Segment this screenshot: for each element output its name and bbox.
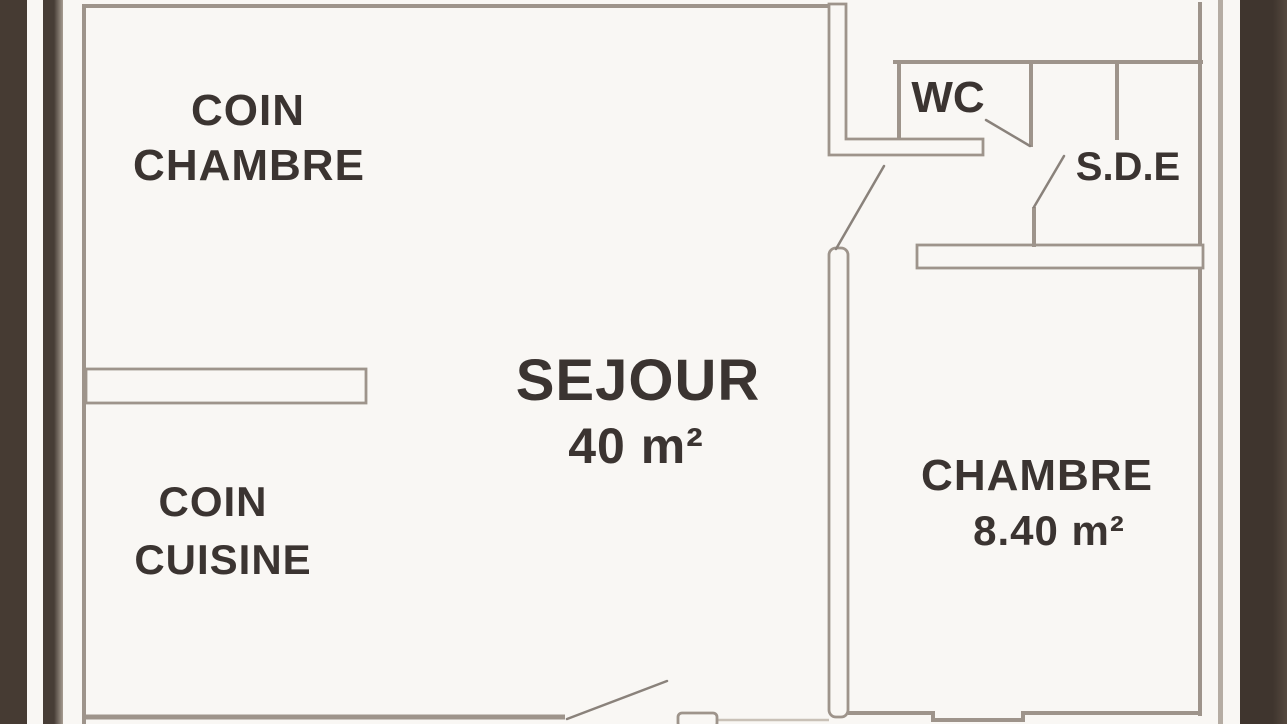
- door-threshold-box: [678, 713, 717, 724]
- room-label-coin-cuisine-line2: CUISINE: [134, 539, 311, 581]
- room-label-sde: S.D.E: [1076, 147, 1180, 187]
- wall-bottom-chambre: [848, 713, 1200, 720]
- room-label-wc: WC: [911, 76, 984, 120]
- floor-plan-page: COIN CHAMBRE SEJOUR 40 m² COIN CUISINE C…: [0, 0, 1287, 724]
- room-label-sejour: SEJOUR: [516, 352, 761, 410]
- room-label-coin-chambre-line1: COIN: [191, 89, 305, 133]
- room-label-coin-cuisine-line1: COIN: [159, 481, 268, 523]
- wall-kitchen-divider: [86, 369, 366, 403]
- door-leaf-sejour-bottom: [567, 681, 667, 719]
- room-label-chambre: CHAMBRE: [921, 454, 1153, 498]
- wc-label-pointer: [986, 120, 1030, 146]
- wall-sejour-chambre-divider: [829, 248, 848, 717]
- sde-label-pointer: [1034, 156, 1064, 207]
- room-area-sejour: 40 m²: [568, 421, 704, 471]
- room-area-chambre: 8.40 m²: [973, 510, 1125, 552]
- wall-chambre-top: [917, 245, 1203, 268]
- room-label-coin-chambre-line2: CHAMBRE: [133, 144, 365, 188]
- door-leaf-hall-entry: [836, 166, 884, 249]
